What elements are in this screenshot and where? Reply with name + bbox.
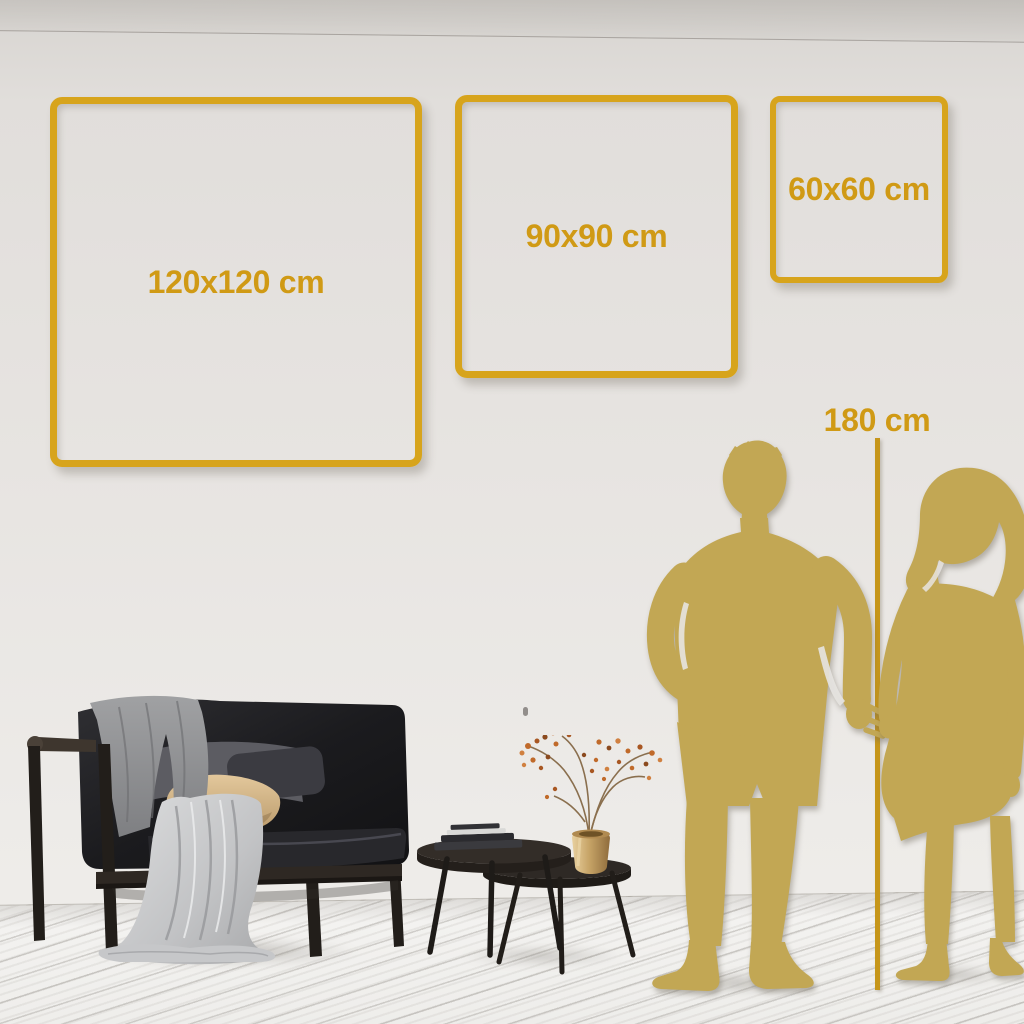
book-stack (434, 822, 523, 850)
wall-hook-dot (523, 707, 528, 716)
couple-silhouettes (600, 430, 1024, 1000)
size-frame-120x120: 120x120 cm (50, 97, 422, 467)
height-ruler-label: 180 cm (797, 402, 957, 439)
man-silhouette (652, 440, 886, 991)
size-frame-60x60: 60x60 cm (770, 96, 948, 283)
size-frame-label: 120x120 cm (148, 264, 325, 301)
sofa-illustration (10, 690, 420, 980)
woman-hand (879, 716, 899, 739)
woman-silhouette (879, 468, 1024, 981)
size-frame-label: 90x90 cm (526, 218, 668, 255)
size-frame-90x90: 90x90 cm (455, 95, 738, 378)
size-frame-label: 60x60 cm (788, 171, 930, 208)
size-guide-scene: 120x120 cm 90x90 cm 60x60 cm 180 cm (0, 0, 1024, 1024)
coffee-table-large (417, 839, 571, 956)
